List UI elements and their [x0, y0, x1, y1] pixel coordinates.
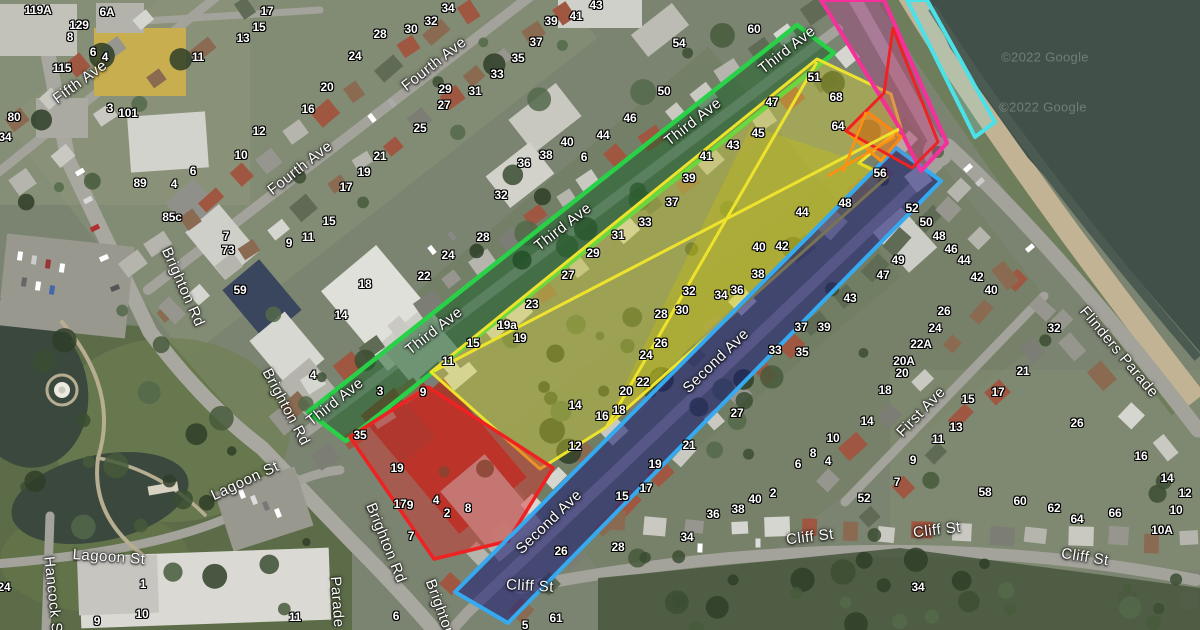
house-number: 41 [570, 9, 583, 23]
house-number: 20 [896, 366, 909, 380]
street-label: Fourth Ave [398, 34, 469, 95]
house-number: 14 [861, 414, 874, 428]
house-number: 43 [727, 138, 740, 152]
house-number: 14 [335, 308, 348, 322]
street-label: Cliff St [912, 519, 962, 542]
house-number: 35 [354, 428, 367, 442]
house-number: 11 [302, 230, 314, 244]
house-number: 35 [796, 345, 809, 359]
house-number: 19 [358, 165, 371, 179]
house-number: 6 [90, 45, 96, 59]
street-label: Hancock St [40, 555, 65, 630]
house-number: 26 [555, 544, 568, 558]
street-label: Parade [327, 576, 348, 628]
house-number: 43 [844, 291, 857, 305]
house-number: 17 [340, 180, 353, 194]
house-number: 2 [770, 486, 776, 500]
house-number: 68 [830, 90, 843, 104]
house-number: 23 [526, 297, 539, 311]
house-number: 52 [858, 491, 871, 505]
house-number: 60 [748, 22, 761, 36]
house-number: 62 [1048, 501, 1061, 515]
street-label: Third Ave [531, 199, 595, 254]
house-number: 3 [377, 384, 383, 398]
house-number: 3 [107, 101, 113, 115]
house-number: 35 [512, 51, 525, 65]
house-number: 39 [545, 14, 558, 28]
house-number: 85c [162, 210, 181, 224]
house-number: 54 [673, 36, 686, 50]
google-attribution-watermark: ©2022 Google [1001, 50, 1089, 65]
house-number: 46 [945, 242, 958, 256]
house-number: 28 [612, 540, 625, 554]
house-number: 6 [795, 457, 801, 471]
house-number: 15 [323, 214, 336, 228]
house-number: 40 [753, 240, 766, 254]
house-number: 19a [497, 318, 516, 332]
house-number: 10 [136, 607, 149, 621]
house-number: 28 [477, 230, 490, 244]
house-number: 10A [1151, 523, 1172, 537]
house-number: 50 [920, 215, 933, 229]
house-number: 66 [1109, 506, 1122, 520]
house-number: 27 [731, 406, 744, 420]
house-number: 37 [666, 195, 679, 209]
house-number: 21 [1017, 364, 1030, 378]
house-number: 24 [0, 580, 10, 594]
house-number: 4 [171, 177, 177, 191]
house-number: 17 [394, 497, 407, 511]
house-number: 64 [832, 119, 845, 133]
house-number: 31 [612, 228, 625, 242]
house-number: 48 [933, 229, 946, 243]
house-number: 9 [286, 236, 292, 250]
house-number: 12 [1179, 486, 1192, 500]
house-number: 47 [877, 268, 890, 282]
house-number: 6 [190, 164, 196, 178]
house-number: 89 [134, 176, 147, 190]
house-number: 101 [118, 106, 137, 120]
house-number: 40 [749, 492, 762, 506]
satellite-map[interactable]: Fifth AveFourth AveFourth AveThird AveTh… [0, 0, 1200, 630]
house-number: 12 [253, 124, 266, 138]
house-number: 1 [140, 577, 146, 591]
house-number: 26 [655, 336, 668, 350]
house-number: 17 [640, 481, 653, 495]
house-number: 44 [958, 253, 971, 267]
house-number: 19 [514, 331, 527, 345]
house-number: 33 [491, 67, 504, 81]
house-number: 4 [433, 493, 439, 507]
house-number: 16 [1135, 449, 1148, 463]
house-number: 59 [234, 283, 247, 297]
house-number: 9 [420, 385, 426, 399]
house-number: 34 [715, 288, 728, 302]
street-label: Flinders Parade [1076, 303, 1162, 401]
street-label: Third Ave [303, 374, 367, 429]
house-number: 38 [752, 267, 765, 281]
street-label: Lagoon St [72, 546, 146, 568]
house-number: 4 [825, 454, 831, 468]
house-number: 42 [776, 239, 789, 253]
house-number: 44 [796, 205, 809, 219]
house-number: 39 [683, 171, 696, 185]
house-number: 34 [0, 130, 11, 144]
house-number: 31 [469, 84, 482, 98]
map-labels-layer: Fifth AveFourth AveFourth AveThird AveTh… [0, 0, 1200, 630]
house-number: 24 [442, 248, 455, 262]
house-number: 49 [892, 253, 905, 267]
house-number: 37 [795, 320, 808, 334]
house-number: 7 [894, 475, 900, 489]
house-number: 14 [1161, 471, 1174, 485]
house-number: 38 [732, 502, 745, 516]
house-number: 47 [766, 95, 779, 109]
house-number: 36 [707, 507, 720, 521]
house-number: 61 [550, 611, 563, 625]
house-number: 27 [438, 98, 451, 112]
house-number: 6A [100, 5, 115, 19]
house-number: 5 [522, 618, 528, 630]
street-label: Brighton Rd [158, 245, 208, 329]
house-number: 9 [910, 453, 916, 467]
google-attribution-watermark: ©2022 Google [999, 100, 1087, 115]
house-number: 40 [985, 283, 998, 297]
house-number: 7 [223, 229, 229, 243]
house-number: 9 [94, 614, 100, 628]
house-number: 80 [8, 110, 21, 124]
house-number: 15 [253, 20, 266, 34]
house-number: 50 [658, 84, 671, 98]
street-label: Second Ave [680, 325, 753, 396]
street-label: Cliff St [506, 576, 555, 595]
house-number: 13 [950, 420, 963, 434]
house-number: 41 [700, 149, 713, 163]
house-number: 43 [590, 0, 603, 12]
street-label: Third Ave [402, 303, 466, 358]
house-number: 28 [374, 27, 387, 41]
house-number: 6 [581, 150, 587, 164]
house-number: 27 [562, 268, 575, 282]
house-number: 14 [569, 398, 582, 412]
house-number: 19 [649, 457, 662, 471]
house-number: 45 [752, 126, 765, 140]
house-number: 22A [910, 337, 931, 351]
house-number: 73 [222, 243, 235, 257]
house-number: 24 [349, 49, 362, 63]
house-number: 34 [912, 580, 925, 594]
house-number: 52 [906, 201, 919, 215]
house-number: 46 [624, 111, 637, 125]
house-number: 13 [237, 31, 250, 45]
house-number: 18 [879, 383, 892, 397]
house-number: 11 [932, 432, 944, 446]
house-number: 4 [102, 50, 108, 64]
house-number: 20 [620, 384, 633, 398]
street-label: Cliff St [785, 526, 835, 549]
house-number: 29 [587, 246, 600, 260]
house-number: 26 [938, 304, 951, 318]
house-number: 16 [596, 409, 609, 423]
house-number: 36 [518, 156, 531, 170]
house-number: 4 [310, 368, 316, 382]
house-number: 33 [639, 215, 652, 229]
house-number: 8 [67, 30, 73, 44]
house-number: 115 [53, 61, 72, 75]
street-label: Fourth Ave [264, 138, 335, 199]
house-number: 29 [439, 82, 452, 96]
house-number: 37 [530, 35, 543, 49]
street-label: Third Ave [661, 94, 725, 149]
house-number: 30 [405, 22, 418, 36]
house-number: 22 [418, 269, 431, 283]
street-label: Brighton Rd [259, 366, 314, 449]
house-number: 18 [359, 277, 372, 291]
street-label: Brighton [422, 577, 458, 630]
house-number: 32 [1048, 321, 1061, 335]
house-number: 58 [979, 485, 992, 499]
house-number: 119A [24, 3, 51, 17]
house-number: 15 [962, 392, 975, 406]
house-number: 38 [540, 148, 553, 162]
house-number: 32 [425, 14, 438, 28]
house-number: 20 [321, 80, 334, 94]
house-number: 19 [391, 461, 404, 475]
house-number: 10 [1170, 503, 1183, 517]
house-number: 21 [374, 149, 387, 163]
house-number: 24 [929, 321, 942, 335]
house-number: 18 [613, 403, 626, 417]
house-number: 39 [818, 320, 831, 334]
house-number: 44 [597, 128, 610, 142]
house-number: 33 [769, 343, 782, 357]
house-number: 8 [810, 446, 816, 460]
house-number: 34 [681, 530, 694, 544]
house-number: 48 [839, 196, 852, 210]
house-number: 15 [616, 489, 629, 503]
house-number: 16 [302, 102, 315, 116]
house-number: 9 [407, 498, 413, 512]
house-number: 8 [465, 501, 471, 515]
house-number: 40 [561, 135, 574, 149]
house-number: 2 [444, 506, 450, 520]
house-number: 64 [1071, 512, 1084, 526]
house-number: 32 [495, 188, 508, 202]
house-number: 15 [467, 336, 480, 350]
house-number: 42 [971, 270, 984, 284]
street-label: Lagoon St [208, 458, 281, 504]
house-number: 34 [442, 1, 455, 15]
house-number: 26 [1071, 416, 1084, 430]
house-number: 10 [235, 148, 248, 162]
house-number: 22 [637, 375, 650, 389]
house-number: 10 [827, 431, 840, 445]
street-label: Cliff St [1060, 545, 1110, 569]
house-number: 21 [683, 438, 696, 452]
house-number: 7 [408, 529, 414, 543]
house-number: 11 [289, 610, 301, 624]
house-number: 28 [655, 307, 668, 321]
house-number: 11 [192, 50, 204, 64]
house-number: 32 [683, 284, 696, 298]
house-number: 56 [874, 166, 887, 180]
house-number: 60 [1014, 494, 1027, 508]
house-number: 30 [676, 303, 689, 317]
house-number: 12 [569, 439, 582, 453]
house-number: 25 [414, 121, 427, 135]
house-number: 11 [442, 354, 454, 368]
street-label: Second Ave [513, 486, 586, 557]
house-number: 17 [261, 4, 274, 18]
house-number: 51 [808, 70, 821, 84]
house-number: 17 [992, 385, 1005, 399]
house-number: 6 [393, 609, 399, 623]
house-number: 24 [640, 348, 653, 362]
street-label: Brighton Rd [362, 501, 409, 586]
house-number: 36 [731, 283, 744, 297]
